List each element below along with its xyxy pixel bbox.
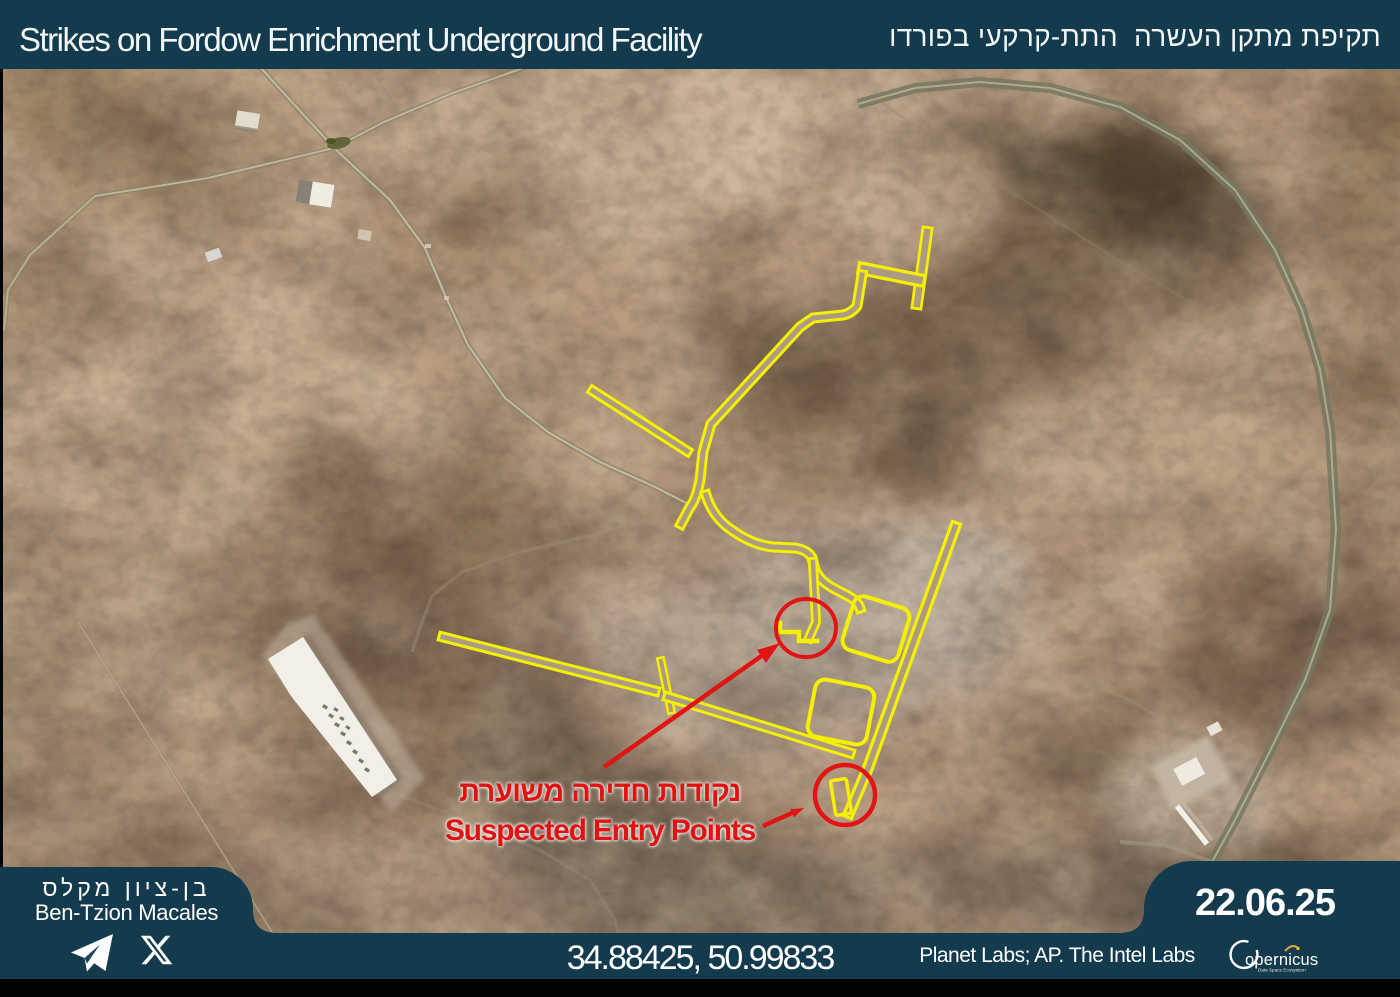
svg-text:opernicus: opernicus bbox=[1245, 951, 1318, 969]
svg-text:Data Space Ecosystem: Data Space Ecosystem bbox=[1258, 968, 1306, 973]
